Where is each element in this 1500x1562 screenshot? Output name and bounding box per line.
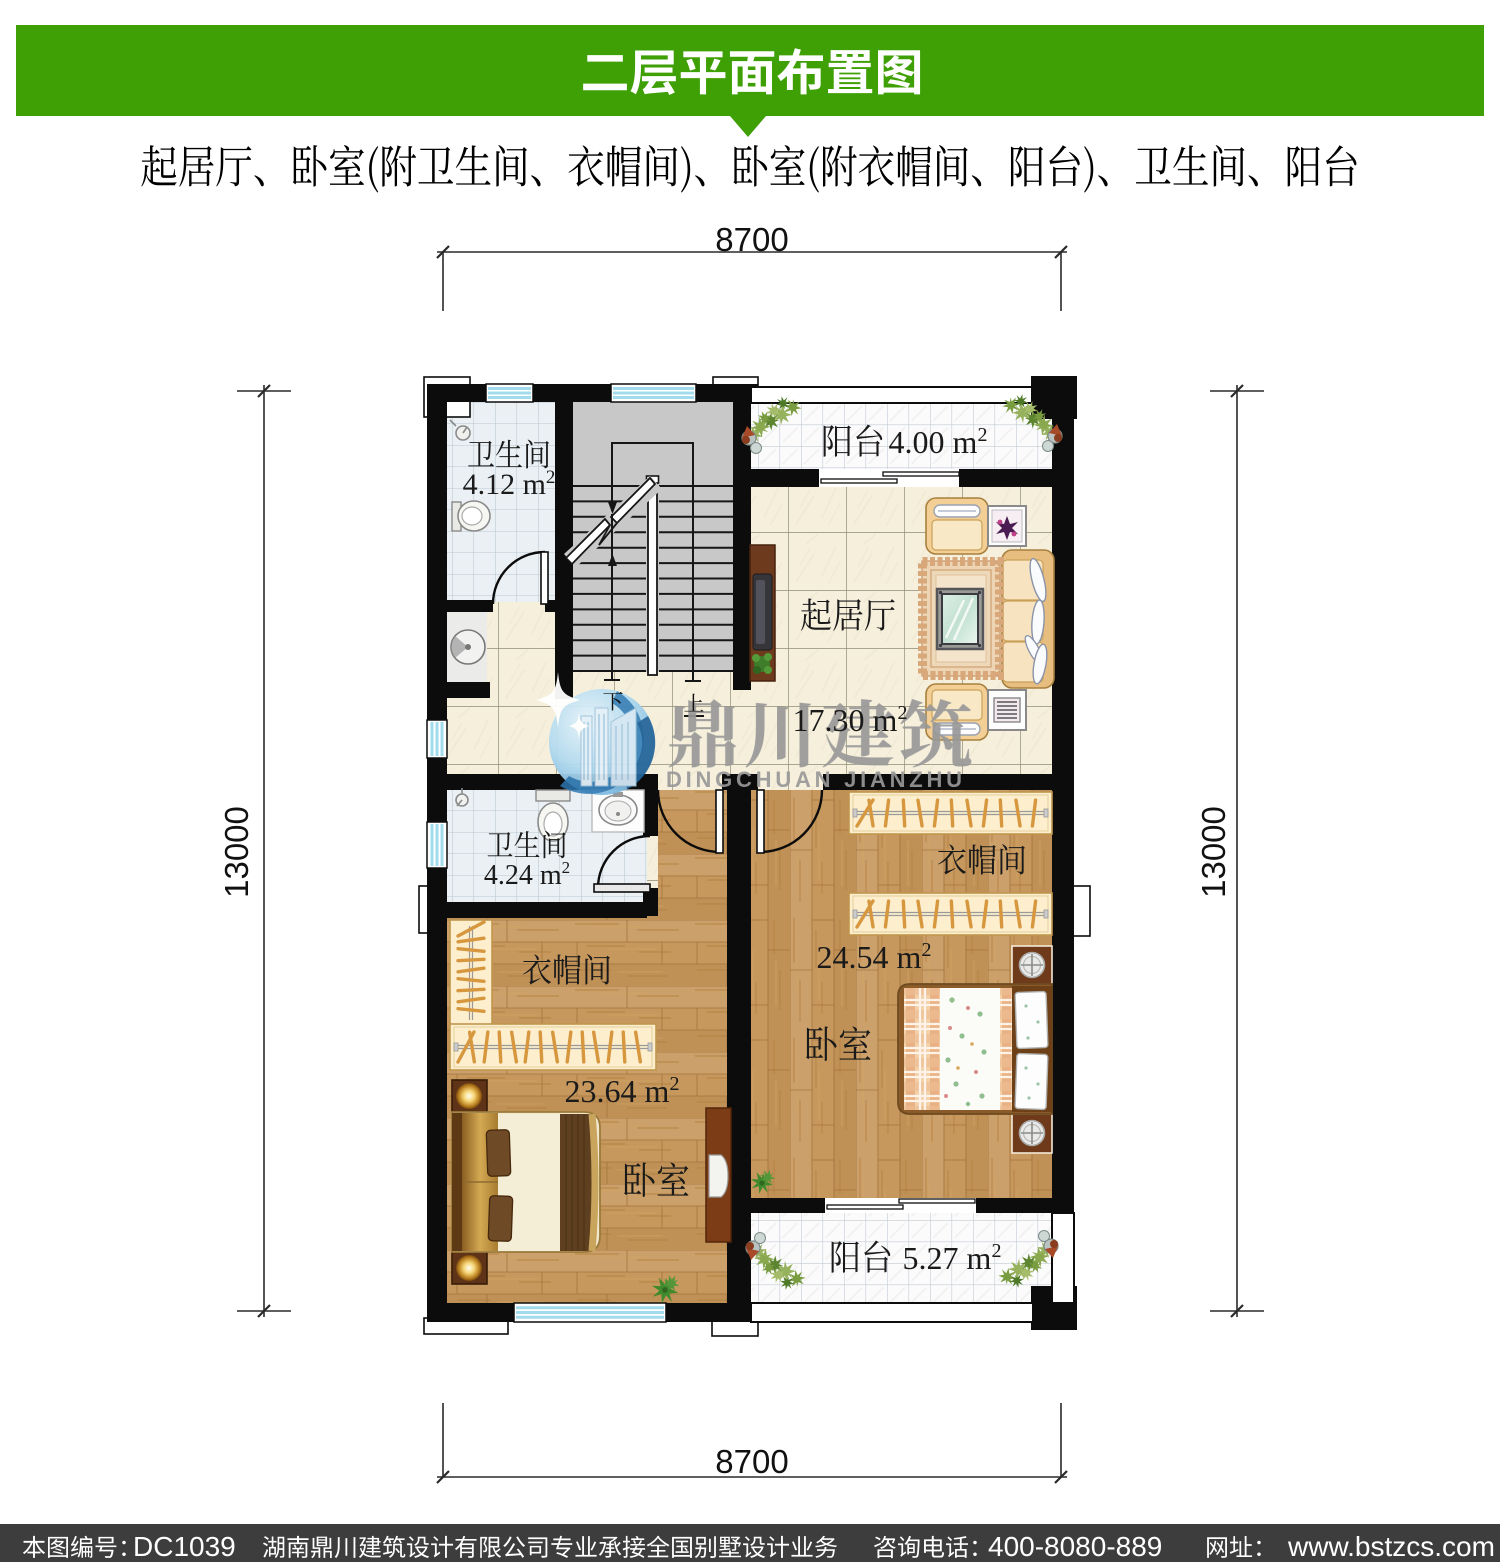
- svg-text:13000: 13000: [218, 806, 255, 898]
- svg-text:5.27 m2: 5.27 m2: [903, 1240, 1002, 1276]
- svg-text:DINGCHUAN JIANZHU: DINGCHUAN JIANZHU: [666, 767, 962, 792]
- svg-text:8700: 8700: [715, 221, 788, 258]
- svg-text:13000: 13000: [1195, 806, 1232, 898]
- svg-text:23.64 m2: 23.64 m2: [565, 1073, 680, 1109]
- svg-text:DC1039: DC1039: [133, 1531, 236, 1562]
- svg-text:24.54 m2: 24.54 m2: [817, 939, 932, 975]
- svg-text:www.bstzcs.com: www.bstzcs.com: [1287, 1531, 1495, 1562]
- svg-text:400-8080-889: 400-8080-889: [988, 1531, 1162, 1562]
- svg-text:4.00 m2: 4.00 m2: [889, 424, 988, 460]
- svg-text:17.30 m2: 17.30 m2: [793, 702, 908, 738]
- svg-text:8700: 8700: [715, 1443, 788, 1480]
- svg-text:4.12 m2: 4.12 m2: [463, 467, 556, 501]
- svg-text:4.24 m2: 4.24 m2: [484, 858, 570, 891]
